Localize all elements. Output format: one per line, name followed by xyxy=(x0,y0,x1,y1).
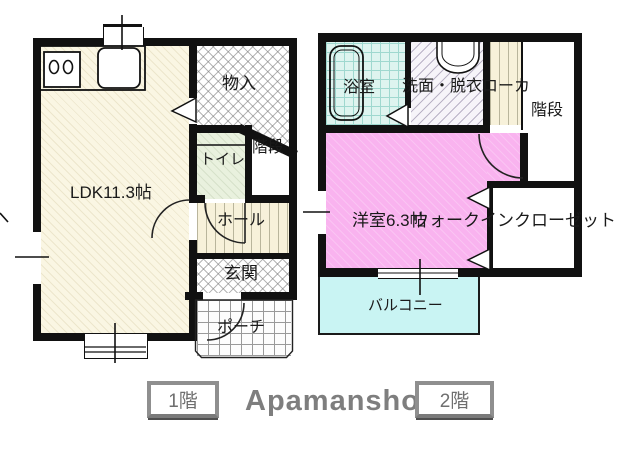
room-label-storage: 物入 xyxy=(222,75,256,92)
room-label-stairs-2f: 階段 xyxy=(531,103,563,119)
wall-segment xyxy=(318,33,326,277)
wall-segment xyxy=(405,42,411,108)
wall-segment xyxy=(487,181,574,188)
wall-segment xyxy=(245,195,289,203)
window-left-1f xyxy=(33,231,41,285)
bay-window-top xyxy=(103,27,144,46)
balcony-door xyxy=(378,268,458,279)
room-label-entrance: 玄関 xyxy=(224,265,258,282)
brand-logo-text: Apamanshop xyxy=(245,385,439,418)
wall-segment xyxy=(189,46,197,98)
edge-tick xyxy=(0,213,8,222)
floor2-button[interactable]: 2階 xyxy=(415,381,494,418)
room-label-closet: ウォークインクローゼット xyxy=(412,212,616,229)
bay-window-bottom xyxy=(84,333,148,359)
floor1-button-label: 1階 xyxy=(168,386,198,413)
room-label-porch: ポーチ xyxy=(217,320,265,336)
floor2-button-label: 2階 xyxy=(440,386,470,413)
wall-segment xyxy=(318,125,483,133)
wall-segment xyxy=(33,38,41,341)
wall-segment xyxy=(189,125,241,133)
room-label-balcony: バルコニー xyxy=(368,298,443,313)
wall-segment xyxy=(189,253,289,259)
room-label-ldk: LDK11.3帖 xyxy=(70,184,152,201)
wall-segment xyxy=(520,133,528,181)
room-label-stairs-1f: 階段 xyxy=(252,140,284,156)
wall-segment xyxy=(574,33,582,277)
room-label-hall: ホール xyxy=(217,213,265,229)
room-bedroom-doorway xyxy=(487,133,520,181)
wall-segment xyxy=(241,292,297,300)
wall-segment xyxy=(245,125,252,199)
floor1-button[interactable]: 1階 xyxy=(147,381,219,418)
wall-segment xyxy=(33,38,297,46)
floorplan-canvas: LDK11.3帖 物入 トイレ 階段 ホール 玄関 ポーチ 浴室 洗面・脱衣ロー… xyxy=(0,0,640,461)
wall-segment xyxy=(189,195,205,203)
wall-segment xyxy=(318,33,582,42)
room-label-bath: 浴室 xyxy=(343,80,375,96)
room-label-washroom: 洗面・脱衣ローカ xyxy=(402,79,530,95)
wall-segment xyxy=(289,38,297,300)
wall-segment xyxy=(189,124,197,200)
window-left-2f xyxy=(318,190,326,235)
room-label-toilet: トイレ xyxy=(200,152,245,167)
room-bedroom xyxy=(326,133,487,268)
